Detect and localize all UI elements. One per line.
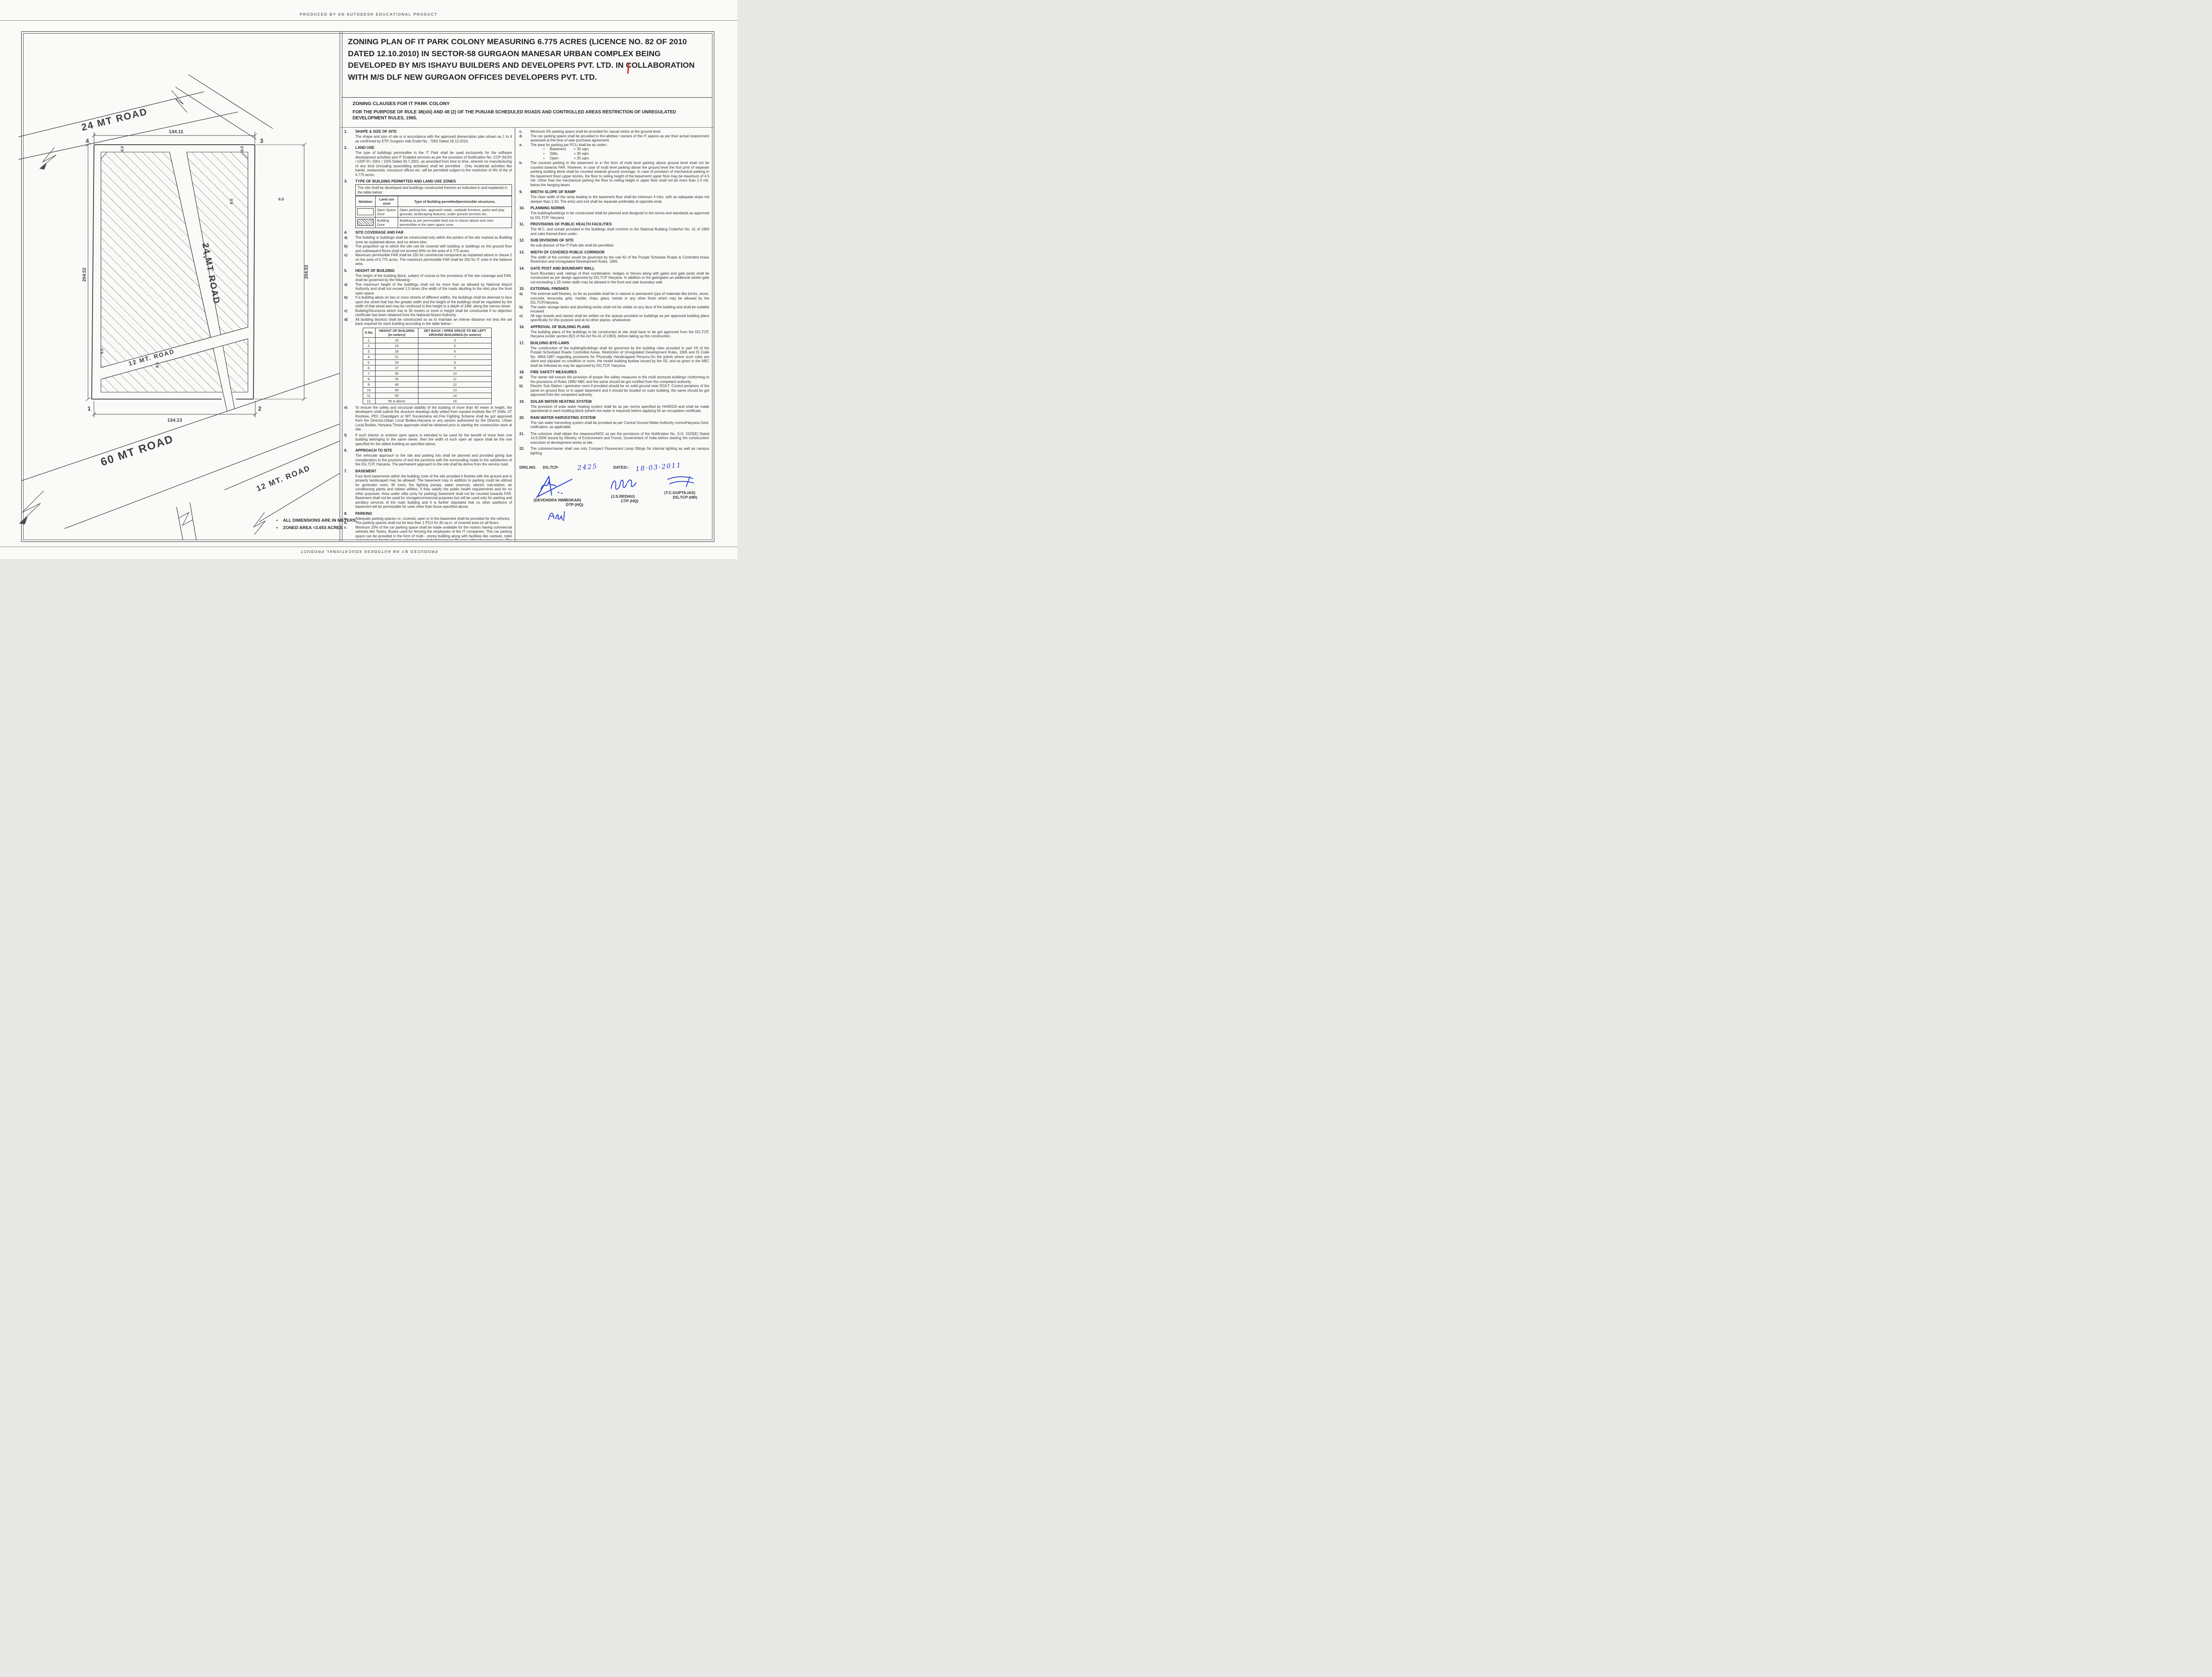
clause-8c-cont: c.Minimum 5% parking space shall be prov…: [519, 129, 709, 134]
offset-6-roadtop: 6.0: [229, 199, 234, 204]
clause-8: 8.PARKING a.Adequate parking spaces i.e.…: [344, 512, 512, 540]
clause-5c: c)Building/Structures which rise to 30 m…: [344, 309, 512, 318]
offset-6-topright: 6.0: [240, 146, 244, 152]
clause-18-title: FIRE SAFETY MEASURES: [530, 370, 577, 374]
column-divider: [515, 127, 515, 541]
clause-18: 18.FIRE SAFETY MEASURES a)The owner will…: [519, 370, 709, 397]
dgtcp-label: DG,TCP-: [543, 465, 559, 470]
clause-15b: b)The water storage tanks and plumbing w…: [519, 305, 709, 314]
clause-21: 21.The colonizer shall obtain the cleara…: [519, 432, 709, 445]
clause-6-no: 6.: [344, 448, 355, 453]
clause-14-title: GATE POST AND BOUNDARY WALL: [530, 266, 594, 271]
clause-19-text: The provision of solar water heating sys…: [530, 405, 709, 413]
height-setback-table: S.No. HEIGHT OF BUILDING(in meters) SET …: [363, 328, 492, 404]
zones-col-type: Type of Building permitted/permissible s…: [398, 196, 512, 207]
zones-building-desc: Building as per permissible land use in …: [398, 218, 512, 228]
drawing-title: ZONING PLAN OF IT PARK COLONY MEASURING …: [348, 36, 706, 83]
clause-6-text: The vehicular approach to the site and p…: [355, 453, 512, 467]
clause-4: 4.SITE COVERAGE AND FAR a)The building o…: [344, 230, 512, 266]
clause-1-no: 1.: [344, 129, 355, 134]
clause-10-text: The building/buildings to be constructed…: [530, 211, 709, 220]
clause-7-title: BASEMENT: [355, 469, 376, 473]
clause-10: 10.PLANNING NORMS The building/buildings…: [519, 206, 709, 220]
ht-col-sno: S.No.: [363, 328, 376, 337]
signatory-ctp: (J.S.REDHU) CTP (HQ): [595, 474, 650, 523]
clause-17-text: The construction of the building/buildin…: [530, 346, 709, 368]
clause-8e: e.The area for parking per PCU shall be …: [519, 143, 709, 147]
pcu-area-list: Basement= 35 sqm. Stilts= 30 sqm. Open= …: [543, 147, 709, 161]
offset-8: 8.0: [155, 362, 159, 368]
ht-row: 12.55 & above16: [363, 398, 492, 404]
zones-col-zone: Land use zone: [376, 196, 398, 207]
clause-13-text: The width of the corridor would be gover…: [530, 255, 709, 264]
clause-17-title: BUILDING BYE-LAWS: [530, 341, 569, 345]
dim-top: 134.11: [169, 129, 183, 135]
clause-19-title: SOLAR WATER HEATING SYSTEM: [530, 400, 592, 404]
drawing-number-row: DRG.NO. DG,TCP- 2425 DATED:- 18·03·2011: [519, 464, 709, 471]
clause-2-text: The type of buildings permissible in the…: [355, 151, 512, 177]
clause-7: 7.BASEMENT Four level basements within t…: [344, 469, 512, 509]
clause-2: 2.LAND USE The type of buildings permiss…: [344, 146, 512, 177]
zones-row-building: Building Zone Building as per permissibl…: [356, 218, 512, 228]
zones-open-label: Open Space Zone: [376, 207, 398, 218]
clause-5: 5.HEIGHT OF BUILDING The height of the b…: [344, 269, 512, 447]
clause-8d: d.The car parking space shall be provide…: [519, 134, 709, 143]
clause-15: 15.EXTERNAL FINISHES a)The external wall…: [519, 287, 709, 323]
clause-5e: e)To ensure fire safety and structural s…: [344, 406, 512, 432]
offset-6-left: 6.0: [100, 348, 104, 354]
corner-2: 2: [258, 405, 261, 412]
drg-no-label: DRG.NO.: [519, 465, 536, 470]
clause-1-text: The shape and size of site is in accorda…: [355, 135, 512, 143]
signatory-dtp-name: (DEVENDRA NIMBOKAR): [534, 498, 581, 502]
zones-row-open: Open Space Zone Open parking lots, appro…: [356, 207, 512, 218]
clause-5b: b)If a building abuts on two or more str…: [344, 295, 512, 309]
clause-18b: b)Electric Sub Station / generator room …: [519, 384, 709, 397]
clause-12-title: SUB DIVISIONS OF SITE: [530, 238, 574, 242]
pcu-stilts: Stilts= 30 sqm.: [543, 152, 709, 156]
clause-5d: d)All building block(s) shall be constru…: [344, 318, 512, 326]
clause-8-title: PARKING: [355, 512, 372, 516]
zoning-clauses-heading: ZONING CLAUSES FOR IT PARK COLONY: [353, 101, 450, 106]
clause-13-title: WIDTH OF COVERED PUBLIC CORRIDOR: [530, 250, 605, 254]
corner-4: 4: [86, 137, 89, 144]
drg-number-handwritten: 2425: [577, 463, 598, 472]
signature-scribble-ctp: [606, 474, 640, 494]
clause-5f: f)If such interior or exterior open spac…: [344, 433, 512, 447]
purpose-statement: FOR THE PURPOSE OF RULE 38(xlii) AND 48 …: [353, 110, 704, 121]
dim-right: 204.52: [304, 265, 309, 279]
ht-row: 4.217: [363, 354, 492, 359]
clause-20-title: RAIN WATER HARVESTING SYSTEM: [530, 416, 595, 420]
clause-18a: a)The owner will ensure the provision of…: [519, 375, 709, 384]
clause-1: 1.SHAPE & SIZE OF SITE The shape and siz…: [344, 129, 512, 143]
clause-15c: c)All sign boards and names shall be wri…: [519, 314, 709, 323]
clause-3: 3.TYPE OF BUILDING PERMITTED AND LAND US…: [344, 179, 512, 228]
clause-20-text: The rain water harvesting system shall b…: [530, 421, 709, 430]
clause-5-intro: The height of the building block, subjec…: [355, 274, 512, 282]
clause-13: 13.WIDTH OF COVERED PUBLIC CORRIDOR The …: [519, 250, 709, 264]
title-block: ZONING PLAN OF IT PARK COLONY MEASURING …: [341, 32, 712, 98]
clause-5-no: 5.: [344, 269, 355, 273]
columns-top-rule: [341, 127, 713, 128]
clause-12: 12.SUB DIVISIONS OF SITE No sub division…: [519, 238, 709, 248]
clause-11-text: The W.C. and urinals provided in the bui…: [530, 227, 709, 236]
zones-open-desc: Open parking lots, approach roads, roads…: [398, 207, 512, 218]
plan-text-divider-inner: [342, 31, 342, 541]
corner-1: 1: [88, 405, 91, 412]
ht-row: 5.248: [363, 359, 492, 365]
clause-22: 22.The coloniser/owner shall use only Co…: [519, 447, 709, 455]
offset-6-right: 6.0: [278, 197, 284, 201]
signatory-ctp-title: CTP (HQ): [621, 499, 638, 503]
dated-label: DATED:-: [613, 465, 629, 470]
clause-4b: b)The proportion up to which the site ca…: [344, 244, 512, 253]
clause-11: 11.PROVISIONS OF PUBLIC HEALTH FACILITIE…: [519, 222, 709, 236]
dim-bottom: 134.13: [167, 418, 182, 423]
clause-1-title: SHAPE & SIZE OF SITE: [355, 129, 397, 134]
ht-row: 3.186: [363, 348, 492, 354]
clause-2-no: 2.: [344, 146, 355, 150]
pcu-basement: Basement= 35 sqm.: [543, 147, 709, 152]
signature-scribble-anil: [545, 507, 569, 523]
clause-10-title: PLANNING NORMS: [530, 206, 565, 210]
clause-4-title: SITE COVERAGE AND FAR: [355, 230, 403, 235]
clause-7-no: 7.: [344, 469, 355, 473]
signatory-dg-name: (T.C.GUPTA,IAS): [665, 490, 695, 495]
clause-15-title: EXTERNAL FINISHES: [530, 287, 569, 291]
ht-row: 2.155: [363, 343, 492, 348]
clause-9: 9.WIDTH/ SLOPE OF RAMP The clear width o…: [519, 190, 709, 204]
clause-4-no: 4.: [344, 230, 355, 235]
clause-9-title: WIDTH/ SLOPE OF RAMP: [530, 190, 576, 194]
clause-14-text: Such Boundary wall, railings of their co…: [530, 271, 709, 285]
signatory-dg: (T.C.GUPTA,IAS) DG,TCP (HR): [650, 474, 709, 523]
open-space-swatch: [357, 208, 374, 215]
clause-16-text: The building plans of the buildings to b…: [530, 330, 709, 339]
clause-5-title: HEIGHT OF BUILDING: [355, 269, 394, 273]
clause-2-title: LAND USE: [355, 146, 374, 150]
clause-16: 16.APPROVAL OF BUILDING PLANS The buildi…: [519, 325, 709, 339]
clause-7-text: Four level basements within the building…: [355, 474, 512, 509]
ht-row: 11.5014: [363, 393, 492, 398]
signature-row: (DEVENDRA NIMBOKAR) DTP (HQ) (J.S.REDHU)…: [519, 474, 709, 523]
clause-3-no: 3.: [344, 179, 355, 183]
land-use-zones-table: Notation Land use zone Type of Building …: [355, 196, 512, 228]
zones-col-notation: Notation: [356, 196, 376, 207]
clause-8a: a.Adequate parking spaces i.e. covered, …: [344, 517, 512, 521]
clause-11-title: PROVISIONS OF PUBLIC HEALTH FACILITIES: [530, 222, 612, 226]
clauses-column-right: c.Minimum 5% parking space shall be prov…: [519, 129, 709, 540]
clause-3-title: TYPE OF BUILDING PERMITTED AND LAND USE …: [355, 179, 456, 183]
clause-8-no: 8.: [344, 512, 355, 516]
pcu-open: Open= 25 sqm.: [543, 156, 709, 161]
signatory-dtp-title: DTP (HQ): [566, 502, 583, 507]
clause-8h: h.The covered parking in the basement or…: [519, 161, 709, 187]
ht-row: 6.279: [363, 365, 492, 371]
ht-row: 8.3511: [363, 376, 492, 382]
clause-9-text: The clear width of the ramp leading to t…: [530, 195, 709, 204]
clause-6: 6.APPROACH TO SITE The vehicular approac…: [344, 448, 512, 467]
ht-row: 7.3010: [363, 371, 492, 376]
clause-20: 20.RAIN WATER HARVESTING SYSTEM The rain…: [519, 416, 709, 430]
ht-col-setback: SET BACK / OPEN SPACE TO BE LEFTAROUND B…: [418, 328, 491, 337]
signatory-dtp: (DEVENDRA NIMBOKAR) DTP (HQ): [519, 474, 595, 523]
ht-row: 1.103: [363, 337, 492, 343]
site-plan-drawing: 24 MT ROAD 60 MT ROAD 12 MT. ROAD 24 MT …: [0, 0, 341, 559]
clause-5a: a)The maximum height of the buildings sh…: [344, 282, 512, 296]
road-24mt-external-label: 24 MT ROAD: [80, 106, 148, 133]
clause-14: 14.GATE POST AND BOUNDARY WALL Such Boun…: [519, 266, 709, 285]
offset-6-topleft: 6.0: [120, 146, 124, 152]
offset-6-road: 6.0: [202, 253, 207, 258]
clause-17: 17.BUILDING BYE-LAWS The construction of…: [519, 341, 709, 368]
clause-12-text: No sub division of the IT Park site shal…: [530, 243, 709, 248]
clause-6-title: APPROACH TO SITE: [355, 448, 392, 453]
clause-19: 19.SOLAR WATER HEATING SYSTEM The provis…: [519, 400, 709, 413]
clause-15a: a)The external wall finishes, so far as …: [519, 292, 709, 305]
dim-left: 204.52: [82, 267, 87, 282]
zoning-plan-sheet: { "producer": { "top": "PRODUCED BY AN A…: [0, 0, 737, 559]
clause-4c: c)Maximum permissible FAR shall be 150 f…: [344, 253, 512, 266]
clause-4a: a)The building or buildings shall be con…: [344, 235, 512, 244]
clause-8c: c.Minimum 10% of the car parking space s…: [344, 525, 512, 540]
clauses-column-left: 1.SHAPE & SIZE OF SITE The shape and siz…: [344, 129, 512, 540]
signatory-ctp-name: (J.S.REDHU): [611, 494, 635, 499]
signature-scribble-dg: [663, 474, 696, 490]
date-handwritten: 18·03·2011: [635, 462, 682, 473]
building-zone-swatch: [357, 219, 374, 226]
road-60mt-external: [19, 373, 340, 540]
zones-building-label: Building Zone: [376, 218, 398, 228]
clause-8b: b.The parking spaces shall not be less t…: [344, 521, 512, 525]
ht-row: 9.4012: [363, 382, 492, 387]
ht-row: 10.4513: [363, 387, 492, 393]
signatory-dg-title: DG,TCP (HR): [673, 495, 697, 500]
clause-16-title: APPROVAL OF BUILDING PLANS: [530, 325, 590, 329]
corner-3: 3: [260, 137, 263, 144]
ht-col-height: HEIGHT OF BUILDING(in meters): [375, 328, 418, 337]
clause-3-box-intro: The site shall be developed and building…: [355, 184, 512, 196]
signature-scribble-dtp: [535, 474, 579, 498]
road-12mt-external-label: 12 MT. ROAD: [255, 464, 312, 493]
